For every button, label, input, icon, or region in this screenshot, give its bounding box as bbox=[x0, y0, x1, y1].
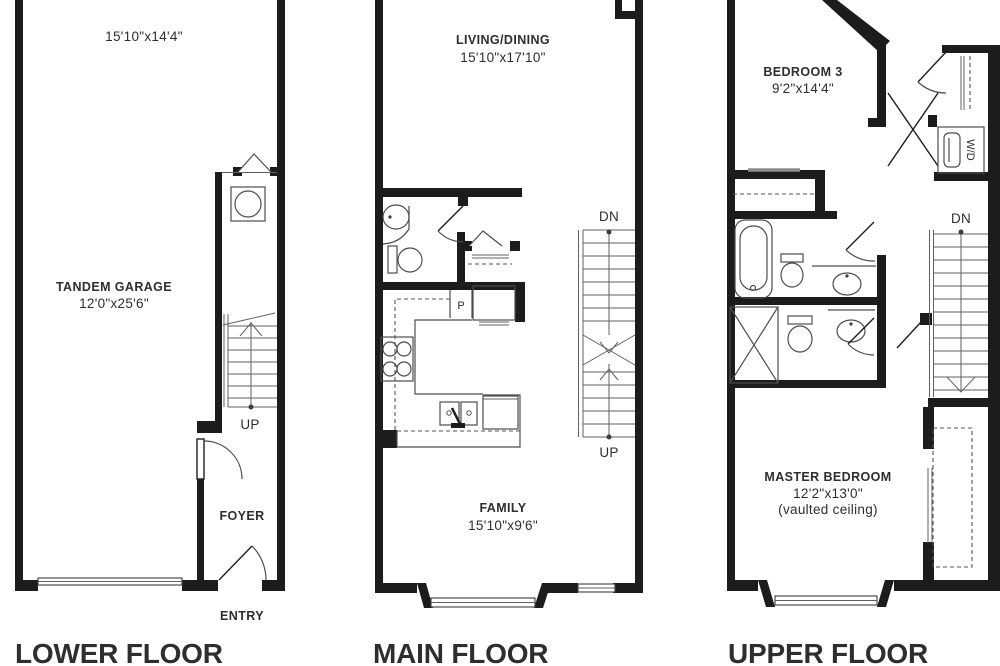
entry-door bbox=[219, 546, 266, 580]
foyer-label: FOYER bbox=[219, 509, 264, 523]
main-floor-plan: P bbox=[373, 0, 643, 666]
pantry-label: P bbox=[457, 300, 464, 312]
stair-dn-label-upper: DN bbox=[951, 211, 971, 226]
floorplan-drawing: 15'10"x14'4" TANDEM GARAGE 12'0"x25'6" U… bbox=[0, 0, 1000, 666]
stair-dn-label-main: DN bbox=[599, 209, 619, 224]
powder-toilet-icon bbox=[388, 246, 422, 273]
shower-icon bbox=[730, 307, 778, 383]
lower-walls bbox=[15, 0, 285, 591]
master-bedroom-dims: 12'2"x13'0" bbox=[793, 486, 863, 501]
stairs-main bbox=[579, 230, 636, 440]
stair-up-label: UP bbox=[240, 417, 259, 432]
ensuite-sink-icon bbox=[828, 310, 875, 342]
master-bedroom-label: MASTER BEDROOM bbox=[764, 470, 891, 484]
bedroom3-label: BEDROOM 3 bbox=[763, 65, 842, 79]
bath-toilet-icon bbox=[781, 254, 803, 287]
kitchen-counter bbox=[395, 299, 483, 430]
stairs-upper bbox=[897, 230, 988, 398]
bedroom3-dims: 9'2"x14'4" bbox=[772, 81, 834, 96]
powder-sink-icon bbox=[383, 205, 409, 244]
washer-dryer-icon: W/D bbox=[938, 127, 984, 173]
pantry: P bbox=[450, 290, 472, 318]
bath-sink-icon bbox=[812, 266, 876, 295]
coat-closet bbox=[468, 231, 512, 264]
stair-up-label-main: UP bbox=[599, 445, 618, 460]
linen-closet bbox=[918, 52, 970, 110]
water-heater-icon bbox=[231, 187, 265, 221]
lower-floor-title: LOWER FLOOR bbox=[15, 638, 223, 666]
kitchen-sink-icon bbox=[440, 402, 477, 428]
bay-window-main bbox=[431, 598, 535, 607]
garage-label: TANDEM GARAGE bbox=[56, 280, 172, 294]
stairs-lower bbox=[223, 313, 277, 410]
upper-floor-plan: W/D bbox=[727, 0, 1000, 666]
garage-dims: 12'0"x25'6" bbox=[79, 296, 149, 311]
hall-doors bbox=[888, 93, 938, 166]
family-label: FAMILY bbox=[479, 501, 526, 515]
living-dining-dims: 15'10"x17'10" bbox=[460, 50, 545, 65]
lower-room-dims: 15'10"x14'4" bbox=[105, 29, 183, 44]
stove-icon bbox=[381, 337, 413, 381]
garage-door bbox=[38, 578, 182, 585]
entry-label: ENTRY bbox=[220, 609, 264, 623]
family-dims: 15'10"x9'6" bbox=[468, 518, 538, 533]
living-dining-label: LIVING/DINING bbox=[456, 33, 550, 47]
family-window bbox=[578, 584, 615, 592]
wd-label: W/D bbox=[964, 139, 976, 160]
tub-icon bbox=[735, 220, 772, 298]
master-bedroom-note: (vaulted ceiling) bbox=[778, 502, 878, 517]
bay-window-upper bbox=[775, 596, 877, 605]
master-closet bbox=[928, 428, 972, 567]
bath-door bbox=[846, 222, 875, 261]
mechanical-closet-door bbox=[222, 154, 277, 173]
ensuite-toilet-icon bbox=[788, 316, 812, 352]
main-floor-title: MAIN FLOOR bbox=[373, 638, 548, 666]
fridge-icon bbox=[473, 286, 515, 325]
floorplan-sheet: 15'10"x14'4" TANDEM GARAGE 12'0"x25'6" U… bbox=[0, 0, 1000, 666]
upper-floor-title: UPPER FLOOR bbox=[728, 638, 928, 666]
garage-foyer-door bbox=[197, 439, 242, 479]
lower-floor-plan: 15'10"x14'4" TANDEM GARAGE 12'0"x25'6" U… bbox=[15, 0, 285, 666]
main-walls bbox=[375, 0, 643, 608]
